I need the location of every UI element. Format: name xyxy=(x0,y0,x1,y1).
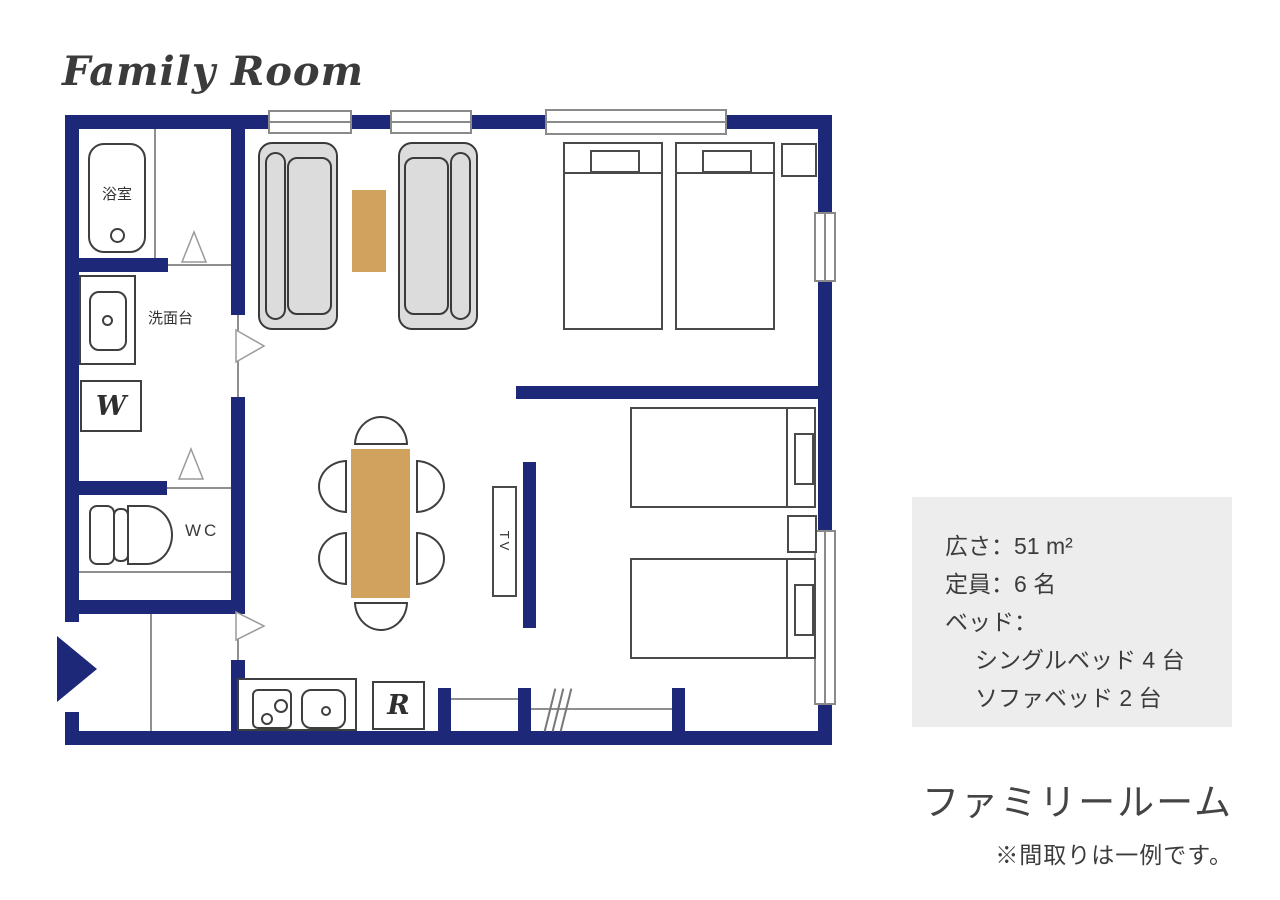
window-mullion xyxy=(824,532,826,703)
single-bed xyxy=(563,142,663,330)
entrance-divider-line xyxy=(150,614,152,731)
washing-machine: W xyxy=(80,380,142,432)
info-bed-detail: シングルベッド 4 台 xyxy=(945,641,1232,679)
single-bed xyxy=(630,558,816,659)
info-area-line: 広さ：51 m² xyxy=(945,527,1232,565)
room-name: ファミリールーム xyxy=(700,772,1233,826)
bath-label: 浴室 xyxy=(102,183,132,204)
sofa-seat xyxy=(404,157,449,315)
outer-wall-top xyxy=(472,115,545,129)
bed-pillow xyxy=(794,584,814,636)
dining-chair xyxy=(318,460,347,513)
single-bed xyxy=(630,407,816,508)
entrance-arrow-icon xyxy=(57,636,97,702)
dining-chair xyxy=(354,416,408,445)
fridge: R xyxy=(372,681,425,730)
sofa xyxy=(398,142,478,330)
washstand-label: 洗面台 xyxy=(148,307,193,328)
nightstand xyxy=(781,143,817,177)
interior-wall-wet-area xyxy=(231,115,245,315)
door-line xyxy=(168,264,231,266)
bed-pillow xyxy=(794,433,814,485)
hanger-pipe-hatch-icon xyxy=(543,688,577,734)
door-line xyxy=(167,487,231,489)
outer-wall-right xyxy=(818,282,832,530)
floor-plan-title: Family Room xyxy=(62,48,364,95)
window xyxy=(545,109,727,135)
interior-wall-washroom-bottom xyxy=(65,481,167,495)
info-capacity-line: 定員：6 名 xyxy=(945,565,1232,603)
kitchen-counter xyxy=(237,678,357,731)
kitchen-sink-drain xyxy=(321,706,331,716)
tv-partition-wall xyxy=(523,462,536,628)
stove-burner xyxy=(274,699,288,713)
info-bed-detail: ソファベッド 2 台 xyxy=(945,679,1232,717)
interior-wall-bedroom-divider xyxy=(516,386,832,399)
closet-line xyxy=(451,698,518,700)
window xyxy=(268,110,352,134)
sofa xyxy=(258,142,338,330)
toilet-tank xyxy=(89,505,115,565)
bed-pillow xyxy=(702,150,752,173)
caption: ファミリールーム ※間取りは一例です。 xyxy=(700,772,1233,870)
single-bed xyxy=(675,142,775,330)
window-mullion xyxy=(270,121,350,123)
sofa-seat xyxy=(287,157,332,315)
tv-label: TV xyxy=(497,530,512,553)
closet-stub xyxy=(672,688,685,731)
interior-wall-wet-area xyxy=(231,397,245,600)
dining-table xyxy=(351,449,410,598)
bathroom-divider-line xyxy=(154,129,156,258)
bed-pillow xyxy=(590,150,640,173)
outer-wall-top xyxy=(727,115,832,129)
window xyxy=(390,110,472,134)
bed-fold-line xyxy=(786,560,788,657)
dining-chair xyxy=(318,532,347,585)
toilet xyxy=(89,503,175,569)
door-swing-icon xyxy=(177,447,205,481)
dining-chair xyxy=(354,602,408,631)
wc-shelf-line xyxy=(79,571,231,573)
nightstand xyxy=(787,515,817,553)
bathtub: 浴室 xyxy=(88,143,146,253)
outer-wall-right xyxy=(818,705,832,745)
outer-wall-left xyxy=(65,115,79,622)
wc-label: WC xyxy=(185,521,219,541)
sofa-back xyxy=(265,152,286,320)
interior-wall-wc-bottom xyxy=(65,600,245,614)
window xyxy=(814,530,836,705)
closet-stub xyxy=(438,688,451,731)
door-swing-icon xyxy=(234,610,266,642)
washbasin-drain xyxy=(102,315,113,326)
toilet-bowl xyxy=(127,505,173,565)
kitchen-sink xyxy=(301,689,346,729)
tv: TV xyxy=(492,486,517,597)
sofa-back xyxy=(450,152,471,320)
window-mullion xyxy=(547,121,725,123)
window-mullion xyxy=(824,214,826,280)
outer-wall-top xyxy=(352,115,390,129)
door-swing-icon xyxy=(234,328,266,364)
dining-chair xyxy=(416,532,445,585)
bathtub-drain xyxy=(110,228,125,243)
door-swing-icon xyxy=(180,230,208,264)
disclaimer: ※間取りは一例です。 xyxy=(700,836,1233,870)
dining-chair xyxy=(416,460,445,513)
info-bed-line: ベッド： xyxy=(945,603,1232,641)
stove xyxy=(252,689,292,729)
window xyxy=(814,212,836,282)
outer-wall-right xyxy=(818,115,832,212)
closet-stub xyxy=(518,688,531,731)
info-box: 広さ：51 m² 定員：6 名 ベッド： シングルベッド 4 台 ソファベッド … xyxy=(912,497,1232,727)
window-mullion xyxy=(392,121,470,123)
washing-machine-label: W xyxy=(96,391,126,422)
outer-wall-bottom xyxy=(65,731,832,745)
stove-burner xyxy=(261,713,273,725)
interior-wall-bath-bottom xyxy=(65,258,168,272)
washbasin-counter xyxy=(79,275,136,365)
bed-fold-line xyxy=(786,409,788,506)
fridge-label: R xyxy=(387,690,409,721)
floor-plan: 浴室 洗面台 W WC xyxy=(65,115,832,745)
coffee-table xyxy=(352,190,386,272)
